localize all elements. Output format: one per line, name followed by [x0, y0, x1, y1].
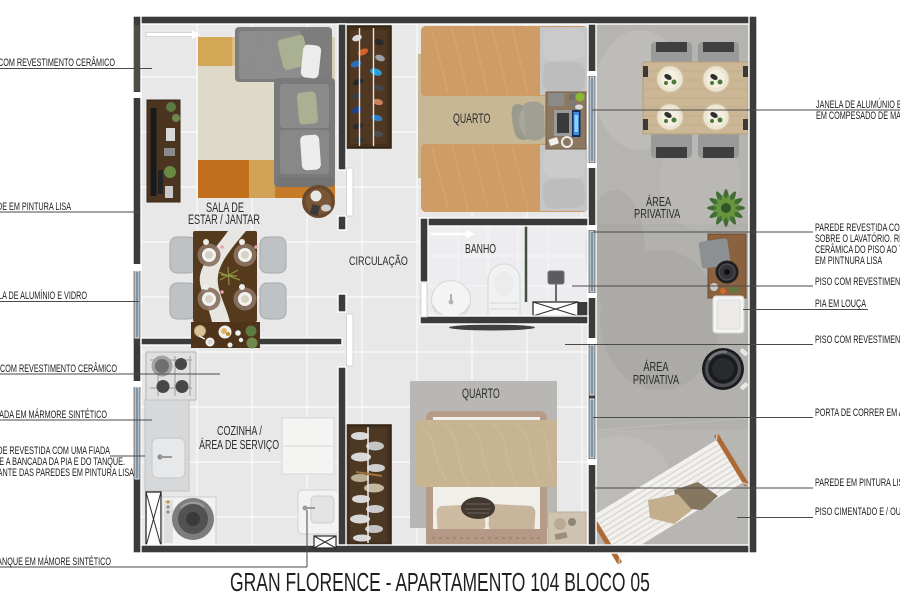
svg-text:PISO COM REVESTIMENTO CERÂMICO: PISO COM REVESTIMENTO CERÂMICO [0, 57, 115, 69]
svg-text:EM COMPESADO DE MADEIRA: EM COMPESADO DE MADEIRA [816, 110, 900, 122]
svg-text:EM PINTNURA LISA: EM PINTNURA LISA [815, 255, 883, 267]
svg-text:ESTAR / JANTAR: ESTAR / JANTAR [188, 213, 260, 227]
svg-text:PISO CIMENTADO E / OU AC: PISO CIMENTADO E / OU AC [815, 506, 900, 518]
svg-text:ÁREA DE SERVIÇO: ÁREA DE SERVIÇO [199, 437, 279, 452]
svg-text:JANELA DE ALUMÍNIO E VIDRO: JANELA DE ALUMÍNIO E VIDRO [0, 290, 87, 302]
svg-text:PRIVATIVA: PRIVATIVA [633, 374, 680, 388]
svg-text:RESTANTE DAS PAREDES EM PINTUR: RESTANTE DAS PAREDES EM PINTURA LISA [0, 467, 135, 479]
svg-text:BANCADA EM MÁRMORE SINTÉTICO: BANCADA EM MÁRMORE SINTÉTICO [0, 409, 107, 421]
svg-text:PISO COM REVESTIMENTO CE: PISO COM REVESTIMENTO CE [815, 334, 900, 346]
svg-text:COZINHA /: COZINHA / [217, 425, 263, 439]
svg-text:GRAN FLORENCE - APARTAMENTO 10: GRAN FLORENCE - APARTAMENTO 104 BLOCO 05 [230, 568, 650, 597]
svg-text:QUARTO: QUARTO [462, 387, 500, 401]
svg-text:PAREDE EM PINTURA LISA: PAREDE EM PINTURA LISA [0, 201, 72, 213]
svg-text:PISO COM REVESTIMENTO CERÂMICO: PISO COM REVESTIMENTO CERÂMICO [0, 363, 117, 375]
svg-text:PISO COM REVESTIMENTO CE: PISO COM REVESTIMENTO CE [815, 276, 900, 288]
svg-text:PRIVATIVA: PRIVATIVA [634, 208, 681, 222]
svg-text:PAREDE EM PINTURA LISA: PAREDE EM PINTURA LISA [815, 477, 900, 489]
svg-text:PIA EM LOUÇA: PIA EM LOUÇA [815, 298, 867, 310]
svg-text:ÁREA: ÁREA [643, 360, 669, 375]
svg-text:BANHO: BANHO [465, 243, 496, 257]
svg-text:TANQUE EM MÁMORE SINTÉTICO: TANQUE EM MÁMORE SINTÉTICO [0, 556, 111, 568]
svg-text:PORTA DE CORRER EM ALUM: PORTA DE CORRER EM ALUM [815, 407, 900, 419]
svg-text:QUARTO: QUARTO [453, 111, 490, 127]
svg-text:CIRCULAÇÃO: CIRCULAÇÃO [349, 254, 408, 269]
